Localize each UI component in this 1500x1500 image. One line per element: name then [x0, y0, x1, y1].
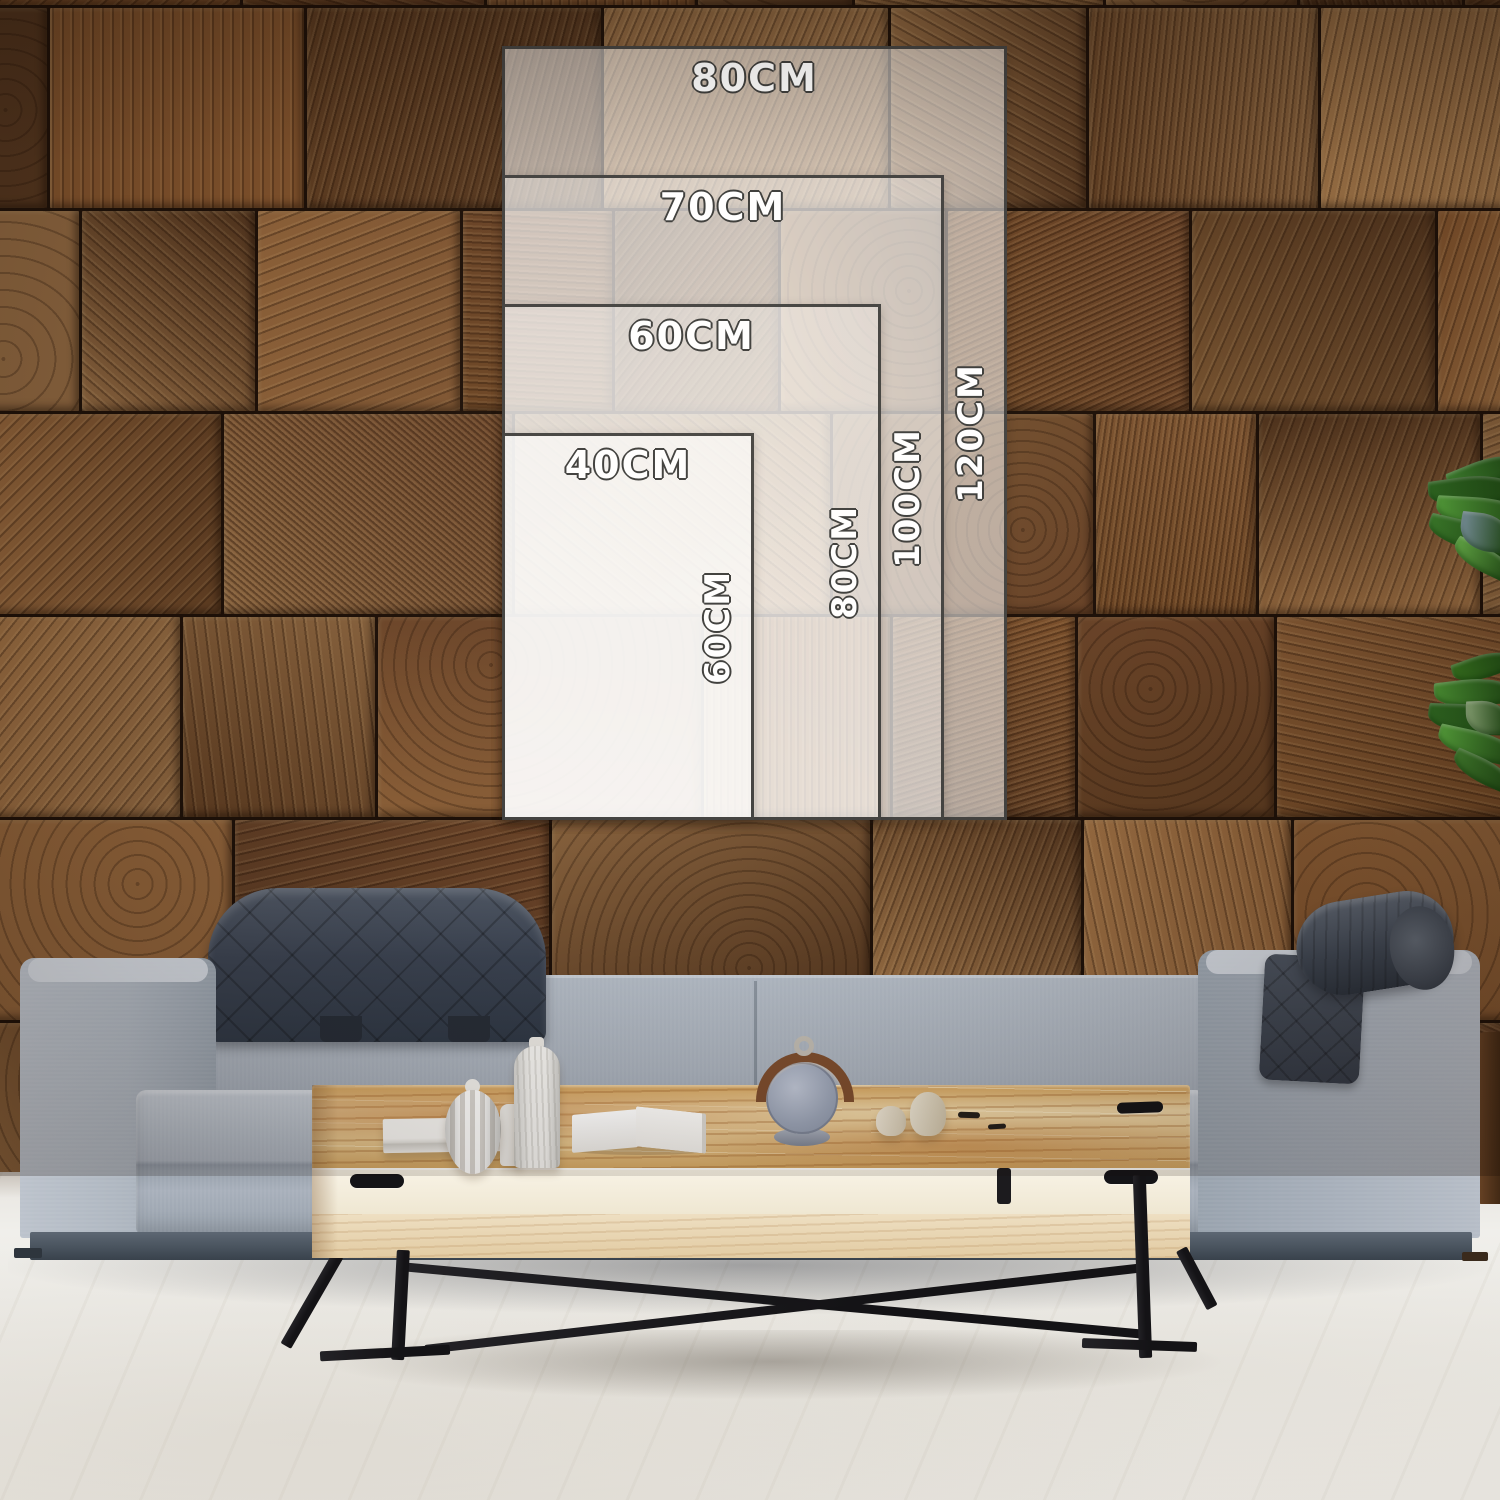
sofa-base-foot	[14, 1248, 42, 1258]
wall-vignette	[0, 0, 1500, 1176]
table-front-grain	[312, 1214, 1190, 1258]
sofa-base-foot	[1462, 1252, 1488, 1261]
table-handle-slot	[350, 1174, 404, 1188]
product-size-guide-photo: 80CM120CM70CM100CM60CM80CM40CM60CM	[0, 0, 1500, 1500]
